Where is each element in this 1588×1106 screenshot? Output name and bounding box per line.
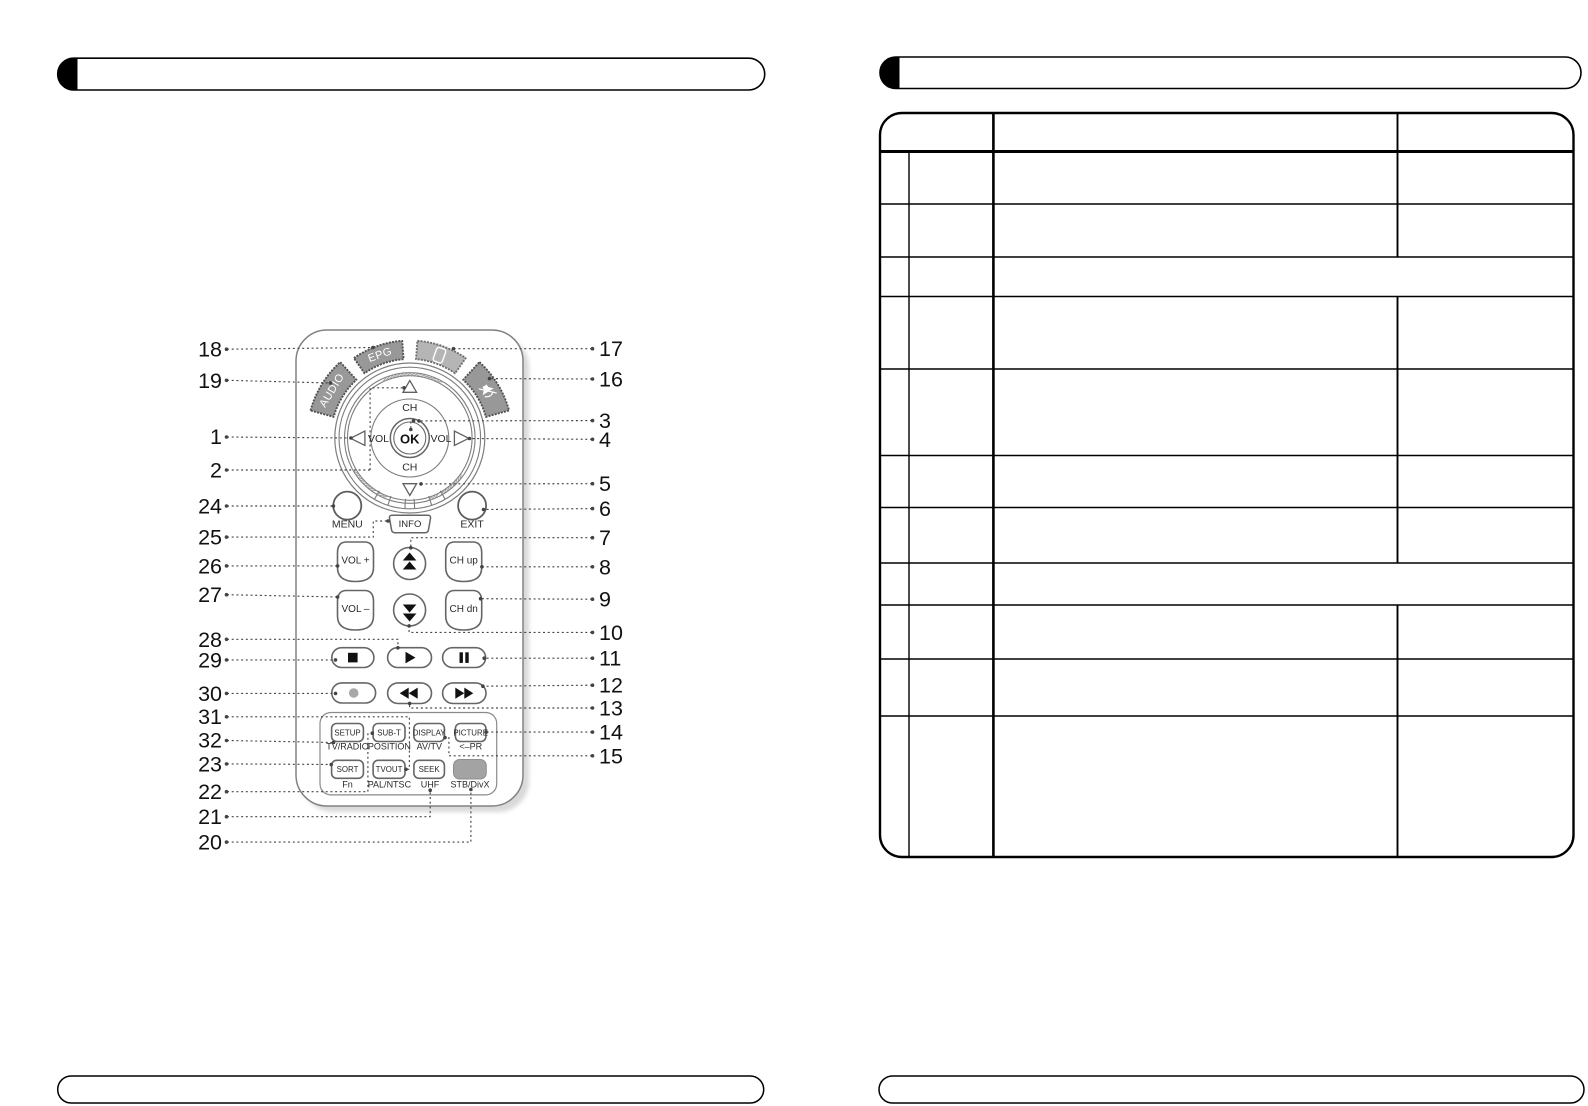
svg-text:OK: OK: [400, 431, 420, 446]
svg-text:12: 12: [599, 674, 623, 698]
svg-text:6: 6: [599, 497, 611, 521]
svg-text:5: 5: [599, 472, 611, 496]
svg-text:VOL +: VOL +: [341, 555, 369, 566]
svg-text:SETUP: SETUP: [334, 728, 360, 737]
svg-text:4: 4: [599, 428, 611, 452]
svg-text:POSITION: POSITION: [368, 742, 411, 752]
svg-text:CH: CH: [402, 402, 417, 414]
svg-text:29: 29: [198, 648, 222, 672]
svg-text:9: 9: [599, 588, 611, 612]
svg-text:30: 30: [198, 682, 222, 706]
svg-text:SUB-T: SUB-T: [377, 728, 401, 737]
svg-text:AV/TV: AV/TV: [417, 742, 442, 752]
svg-text:16: 16: [599, 368, 623, 392]
svg-text:1: 1: [210, 425, 222, 449]
svg-text:CH dn: CH dn: [450, 604, 478, 615]
svg-text:SEEK: SEEK: [419, 765, 441, 774]
svg-text:25: 25: [198, 526, 222, 550]
svg-text:<–PR: <–PR: [459, 742, 482, 752]
svg-text:20: 20: [198, 831, 222, 855]
svg-text:26: 26: [198, 554, 222, 578]
svg-text:Fn: Fn: [342, 780, 353, 790]
svg-text:18: 18: [198, 338, 222, 362]
svg-text:UHF: UHF: [421, 780, 440, 790]
svg-text:EXIT: EXIT: [460, 519, 484, 531]
svg-text:7: 7: [599, 526, 611, 550]
svg-text:VOL: VOL: [430, 433, 451, 445]
svg-text:17: 17: [599, 337, 623, 361]
svg-text:22: 22: [198, 780, 222, 804]
svg-text:VOL –: VOL –: [342, 604, 370, 615]
svg-text:INFO: INFO: [399, 519, 422, 530]
svg-text:24: 24: [198, 495, 222, 519]
svg-text:8: 8: [599, 555, 611, 579]
svg-text:DISPLAY: DISPLAY: [413, 728, 446, 737]
svg-text:TVOUT: TVOUT: [376, 765, 403, 774]
svg-text:PICTURE: PICTURE: [453, 728, 488, 737]
svg-text:31: 31: [198, 705, 222, 729]
svg-text:21: 21: [198, 805, 222, 829]
svg-text:PAL/NTSC: PAL/NTSC: [368, 780, 412, 790]
svg-text:10: 10: [599, 621, 623, 645]
svg-text:MENU: MENU: [332, 519, 363, 531]
svg-text:27: 27: [198, 583, 222, 607]
svg-text:SORT: SORT: [337, 765, 359, 774]
svg-text:VOL: VOL: [368, 433, 389, 445]
svg-text:23: 23: [198, 752, 222, 776]
svg-text:11: 11: [599, 647, 621, 671]
svg-text:32: 32: [198, 729, 222, 753]
svg-text:CH: CH: [402, 462, 417, 474]
svg-text:14: 14: [599, 721, 623, 745]
svg-text:13: 13: [599, 697, 623, 721]
svg-text:CH up: CH up: [450, 555, 479, 566]
svg-text:15: 15: [599, 744, 623, 768]
svg-text:2: 2: [210, 459, 222, 483]
svg-text:19: 19: [198, 369, 222, 393]
